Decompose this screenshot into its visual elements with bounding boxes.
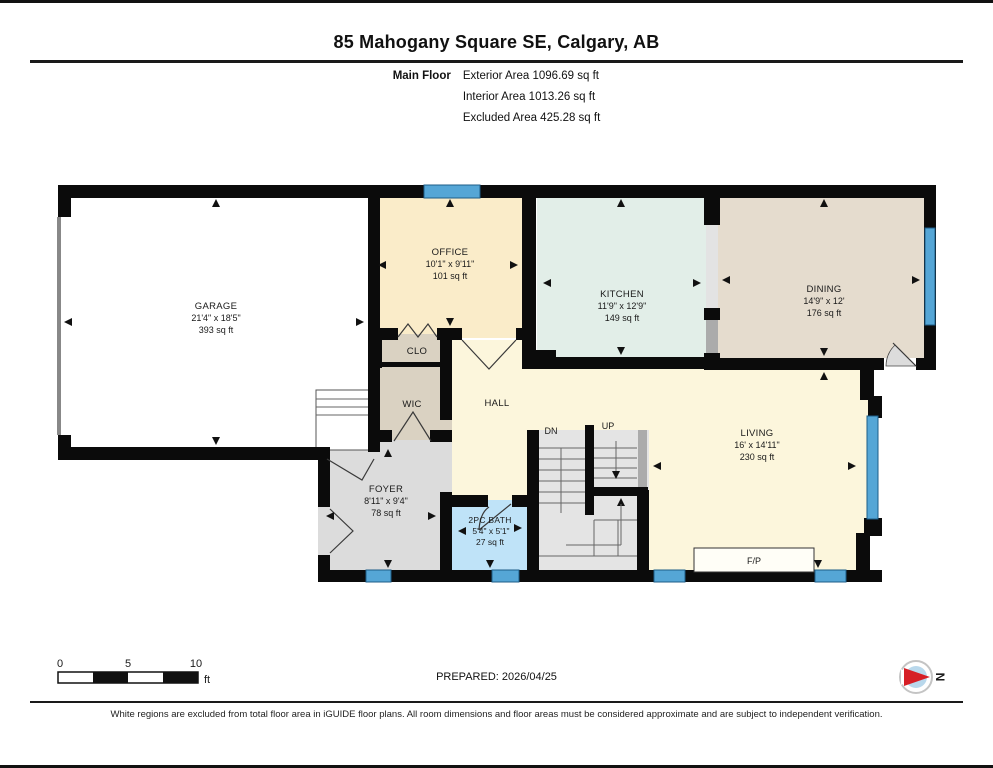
- stairs-up-label: UP: [602, 421, 615, 431]
- clo-label: CLO: [407, 346, 427, 357]
- svg-text:11'9" x 12'9": 11'9" x 12'9": [598, 301, 647, 311]
- stairs-dn-label: DN: [545, 426, 558, 436]
- dining-window: [925, 228, 935, 325]
- floorplan-drawing: F/P GARAGE 21'4" x 18'5" 393 sq: [0, 0, 993, 768]
- living-window-right: [815, 570, 846, 582]
- svg-text:149 sq ft: 149 sq ft: [605, 313, 640, 323]
- dining-label: DINING 14'9" x 12' 176 sq ft: [803, 284, 844, 318]
- svg-text:2PC BATH: 2PC BATH: [468, 515, 511, 525]
- kitchen-dining-opening: [706, 225, 718, 308]
- hall-label: HALL: [485, 398, 510, 409]
- svg-text:16' x 14'11": 16' x 14'11": [734, 440, 780, 450]
- fireplace: F/P: [694, 548, 814, 572]
- kitchen-label: KITCHEN 11'9" x 12'9" 149 sq ft: [598, 289, 647, 323]
- svg-text:DINING: DINING: [806, 284, 841, 295]
- fireplace-label: F/P: [747, 556, 761, 566]
- svg-text:393 sq ft: 393 sq ft: [199, 325, 234, 335]
- kitchen-floor: [537, 197, 707, 357]
- wic-label: WIC: [402, 399, 421, 410]
- scale-10: 10: [190, 658, 202, 670]
- foyer-floor: [318, 440, 452, 572]
- scale-5: 5: [125, 658, 131, 670]
- garage-door: [57, 217, 61, 435]
- scale-0: 0: [57, 658, 63, 670]
- office-window: [424, 185, 480, 198]
- disclaimer-text: White regions are excluded from total fl…: [0, 709, 993, 720]
- svg-text:176 sq ft: 176 sq ft: [807, 308, 842, 318]
- living-label: LIVING 16' x 14'11" 230 sq ft: [734, 428, 780, 462]
- footer-divider: [30, 701, 963, 703]
- dining-floor: [718, 197, 924, 358]
- svg-text:27 sq ft: 27 sq ft: [476, 537, 505, 547]
- stairs-halfwall: [638, 430, 647, 492]
- svg-text:OFFICE: OFFICE: [432, 247, 469, 258]
- svg-text:10'1" x 9'11": 10'1" x 9'11": [426, 259, 475, 269]
- bath-window: [492, 570, 519, 582]
- floorplan-page: 85 Mahogany Square SE, Calgary, AB Main …: [0, 0, 993, 768]
- svg-text:KITCHEN: KITCHEN: [600, 289, 644, 300]
- foyer-window: [366, 570, 391, 582]
- svg-text:8'11" x 9'4": 8'11" x 9'4": [364, 496, 408, 506]
- svg-text:5'4" x 5'1": 5'4" x 5'1": [472, 526, 509, 536]
- svg-text:21'4" x 18'5": 21'4" x 18'5": [191, 313, 240, 323]
- garage-steps: [316, 390, 370, 450]
- prepared-date: PREPARED: 2026/04/25: [0, 671, 993, 683]
- kitchen-dining-halfwall: [706, 320, 718, 353]
- svg-text:14'9" x 12': 14'9" x 12': [803, 296, 844, 306]
- svg-text:101 sq ft: 101 sq ft: [433, 271, 468, 281]
- office-label: OFFICE 10'1" x 9'11" 101 sq ft: [426, 247, 475, 281]
- svg-text:LIVING: LIVING: [741, 428, 774, 439]
- svg-text:78 sq ft: 78 sq ft: [371, 508, 401, 518]
- living-window-left: [654, 570, 685, 582]
- svg-text:GARAGE: GARAGE: [195, 301, 237, 312]
- svg-text:230 sq ft: 230 sq ft: [740, 452, 775, 462]
- living-side-window: [867, 416, 878, 519]
- svg-text:FOYER: FOYER: [369, 484, 403, 495]
